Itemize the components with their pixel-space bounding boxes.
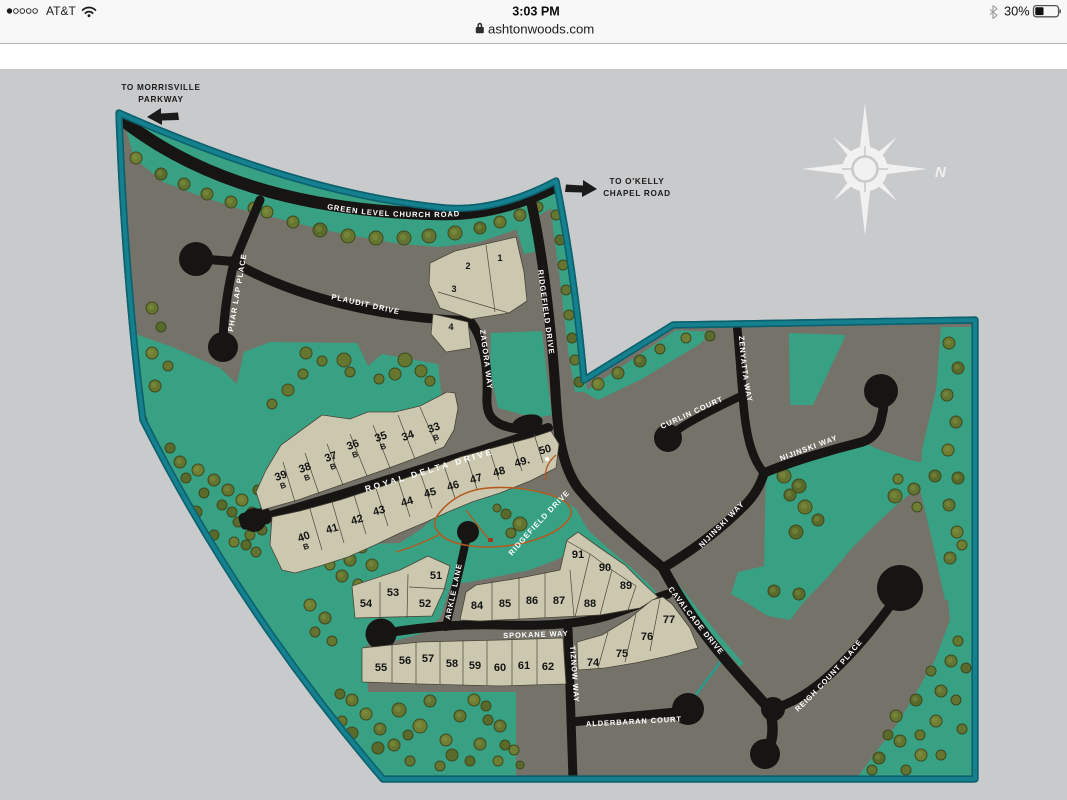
svg-text:84: 84 <box>471 600 484 612</box>
svg-text:3:03 PM: 3:03 PM <box>512 4 560 18</box>
svg-text:89: 89 <box>620 580 632 592</box>
svg-text:51: 51 <box>430 570 442 582</box>
svg-text:AT&T: AT&T <box>46 4 76 18</box>
svg-text:88: 88 <box>584 598 596 610</box>
svg-text:91: 91 <box>572 549 584 561</box>
svg-text:86: 86 <box>526 595 538 607</box>
svg-text:CHAPEL ROAD: CHAPEL ROAD <box>603 189 671 198</box>
svg-text:57: 57 <box>422 653 434 665</box>
svg-text:53: 53 <box>387 587 399 599</box>
svg-text:90: 90 <box>599 562 611 574</box>
svg-text:75: 75 <box>616 648 628 660</box>
svg-text:61: 61 <box>518 660 530 672</box>
svg-text:TO MORRISVILLE: TO MORRISVILLE <box>121 83 200 92</box>
svg-text:76: 76 <box>641 631 653 643</box>
svg-text:74: 74 <box>587 657 600 669</box>
svg-text:58: 58 <box>446 658 458 670</box>
svg-text:52: 52 <box>419 598 431 610</box>
svg-text:62: 62 <box>542 661 554 673</box>
svg-text:PARKWAY: PARKWAY <box>138 95 183 104</box>
svg-text:59: 59 <box>469 660 481 672</box>
svg-text:85: 85 <box>499 598 511 610</box>
svg-text:N: N <box>935 164 947 181</box>
svg-text:3: 3 <box>451 284 456 294</box>
svg-text:87: 87 <box>553 595 565 607</box>
svg-text:77: 77 <box>663 614 675 626</box>
svg-text:60: 60 <box>494 662 506 674</box>
svg-text:30%: 30% <box>1004 4 1030 19</box>
svg-text:56: 56 <box>399 655 411 667</box>
svg-text:TO O'KELLY: TO O'KELLY <box>610 177 665 186</box>
svg-text:2: 2 <box>465 261 470 271</box>
svg-text:1: 1 <box>497 253 502 263</box>
svg-text:54: 54 <box>360 598 373 610</box>
svg-text:ashtonwoods.com: ashtonwoods.com <box>488 22 594 37</box>
svg-text:55: 55 <box>375 662 387 674</box>
svg-text:4: 4 <box>448 322 453 332</box>
